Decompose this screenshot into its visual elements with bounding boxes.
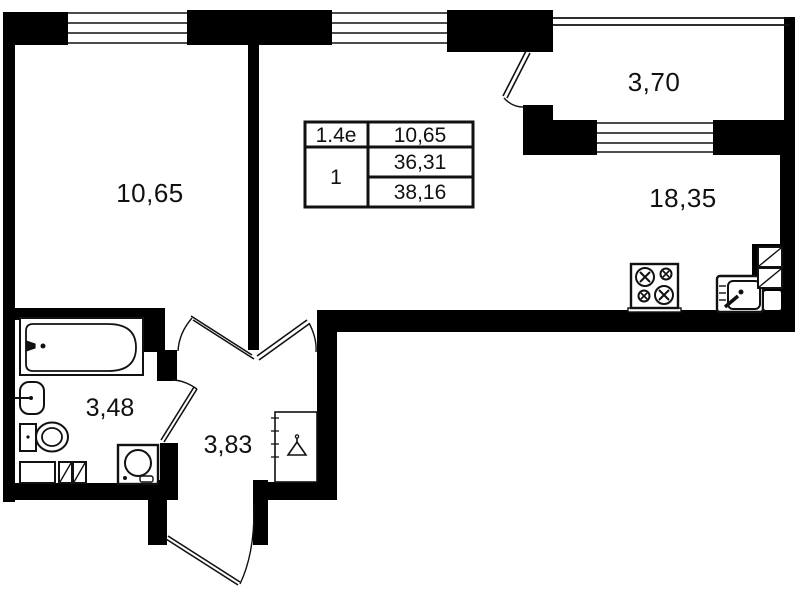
- toilet: [20, 423, 68, 452]
- door-bathroom: [161, 380, 197, 442]
- wall-bathroom-right-mid: [157, 350, 177, 381]
- bathtub: [20, 318, 143, 375]
- window-bedroom: [68, 12, 187, 43]
- area-total-value: 38,16: [394, 181, 447, 204]
- hallway-area-label: 3,83: [204, 431, 253, 459]
- wardrobe: [271, 412, 317, 482]
- wall-entrance-right-post: [253, 480, 268, 545]
- room-count: 1: [330, 166, 342, 189]
- wall-top-c: [447, 10, 553, 52]
- window-balcony-sill: [597, 122, 713, 153]
- balcony-glazing: [553, 18, 790, 25]
- wall-top-a: [3, 12, 68, 45]
- washing-machine: [118, 445, 158, 484]
- balcony-area-label: 3,70: [628, 67, 681, 97]
- door-living: [257, 320, 316, 360]
- bathroom-area-label: 3,48: [86, 394, 135, 422]
- wall-entrance-left-post: [148, 498, 167, 545]
- bedroom-area-label: 10,65: [116, 178, 184, 208]
- info-table: 1.4e 10,65 1 36,31 38,16: [305, 122, 473, 207]
- wall-partition: [248, 45, 259, 350]
- bathroom-niche: [20, 462, 55, 483]
- window-living: [332, 12, 447, 43]
- door-balcony: [503, 51, 530, 107]
- ventilation-shaft-bathroom: [59, 462, 86, 483]
- wash-basin: [14, 382, 44, 414]
- wall-bottom-living: [317, 310, 795, 332]
- area-main-value: 36,31: [394, 151, 447, 174]
- unit-code: 1.4e: [316, 124, 357, 147]
- wall-left: [3, 12, 15, 502]
- entrance-door: [166, 504, 254, 585]
- kitchen-living-area-label: 18,35: [649, 183, 717, 213]
- wall-hallway-right: [317, 330, 337, 500]
- wall-balcony-right: [784, 17, 795, 122]
- wall-top-b: [187, 10, 332, 45]
- door-bedroom: [178, 316, 254, 359]
- kitchen-sink: [717, 276, 763, 312]
- wall-balcony-sill-left: [553, 120, 597, 155]
- living-area-value: 10,65: [394, 124, 447, 147]
- stove: [628, 264, 681, 312]
- wall-balcony-door-jamb: [523, 105, 553, 155]
- floor-plan: 1.4e 10,65 1 36,31 38,16 10,65 3,70 18,3…: [0, 0, 799, 600]
